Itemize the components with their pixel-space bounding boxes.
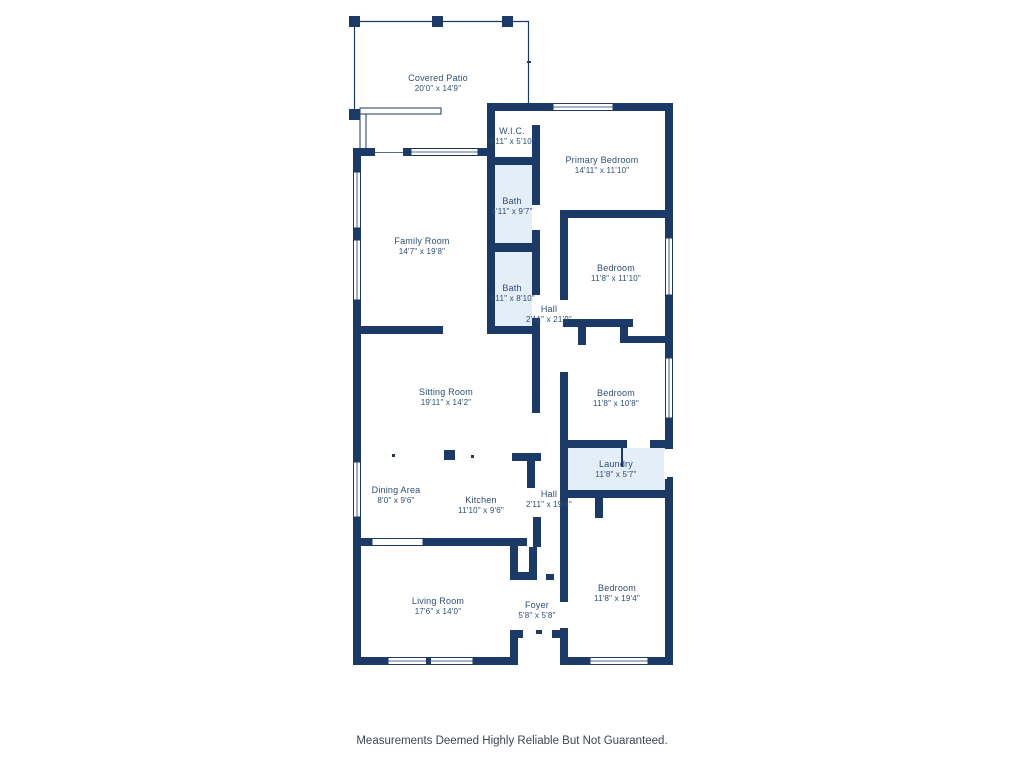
label-bath-upper: Bath4'11" x 9'7" <box>491 196 532 217</box>
floorplan-drawing <box>0 0 1024 768</box>
disclaimer-text: Measurements Deemed Highly Reliable But … <box>356 735 667 747</box>
label-covered-patio: Covered Patio20'0" x 14'9" <box>408 73 468 94</box>
kitchen-post <box>444 450 455 460</box>
label-primary-bedroom: Primary Bedroom14'11" x 11'10" <box>565 155 638 176</box>
label-living-room: Living Room17'6" x 14'0" <box>412 596 464 617</box>
label-wic: W.I.C.4'11" x 5'10" <box>489 126 535 147</box>
label-kitchen: Kitchen11'10" x 9'6" <box>458 495 504 516</box>
patio-railing-vertical <box>360 108 366 152</box>
label-hall-lower: Hall2'11" x 19'4" <box>526 489 572 510</box>
label-foyer: Foyer5'8" x 5'8" <box>518 600 555 621</box>
floorplan-page: Covered Patio20'0" x 14'9" W.I.C.4'11" x… <box>0 0 1024 768</box>
laundry-exterior-door <box>664 449 674 481</box>
label-hall-upper: Hall2'11" x 21'9" <box>526 304 572 325</box>
label-bedroom-2: Bedroom11'8" x 11'10" <box>591 263 641 284</box>
dining-pass-through <box>372 539 423 546</box>
label-bedroom-3: Bedroom11'8" x 10'8" <box>593 388 639 409</box>
label-bedroom-4: Bedroom11'8" x 19'4" <box>594 583 640 604</box>
label-laundry: Laundry11'8" x 5'7" <box>595 459 636 480</box>
patio-railing-horizontal <box>360 108 441 114</box>
label-family-room: Family Room14'7" x 19'8" <box>394 236 449 257</box>
label-bath-lower: Bath4'11" x 8'10" <box>489 283 535 304</box>
label-dining-area: Dining Area8'0" x 9'6" <box>372 485 421 506</box>
label-sitting-room: Sitting Room19'11" x 14'2" <box>419 387 473 408</box>
